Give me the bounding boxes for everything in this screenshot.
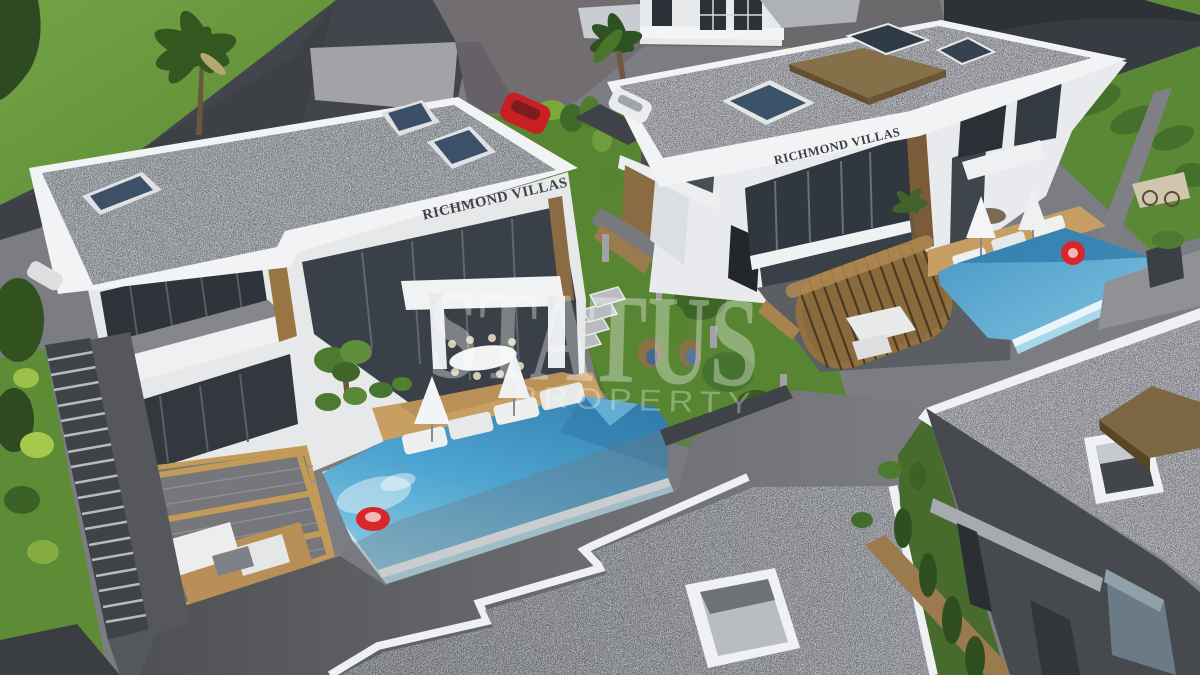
svg-text:PROPERTY: PROPERTY — [513, 381, 758, 421]
